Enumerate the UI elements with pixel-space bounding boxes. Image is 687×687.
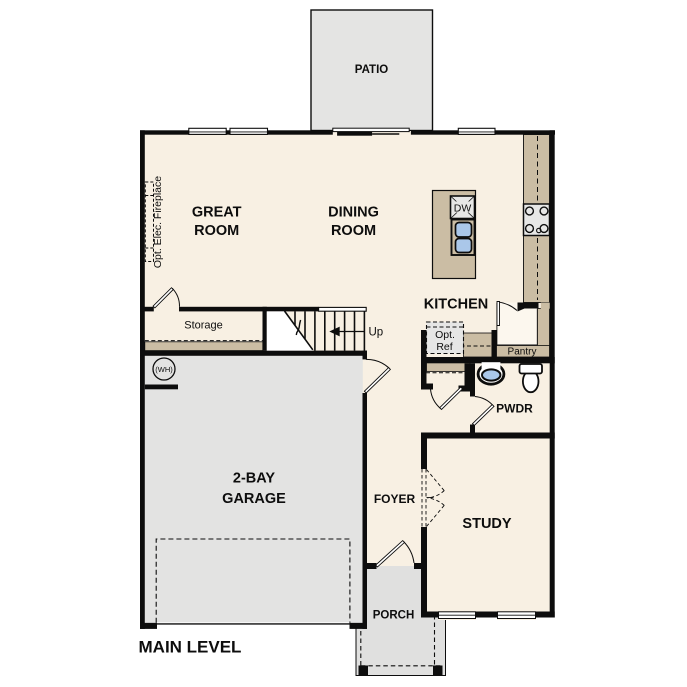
svg-text:ROOM: ROOM <box>331 223 376 239</box>
svg-text:PWDR: PWDR <box>496 402 533 416</box>
svg-text:MAIN LEVEL: MAIN LEVEL <box>139 638 242 657</box>
svg-text:KITCHEN: KITCHEN <box>424 297 488 313</box>
svg-text:PATIO: PATIO <box>355 64 388 76</box>
svg-text:2-BAY: 2-BAY <box>233 471 276 487</box>
svg-text:DW: DW <box>454 203 472 215</box>
svg-text:GREAT: GREAT <box>192 205 242 221</box>
svg-text:Up: Up <box>369 327 384 339</box>
svg-text:FOYER: FOYER <box>374 492 416 506</box>
svg-text:Opt.: Opt. <box>435 329 455 341</box>
svg-text:PORCH: PORCH <box>373 610 415 622</box>
svg-text:GARAGE: GARAGE <box>222 491 286 507</box>
svg-text:Ref: Ref <box>436 341 452 353</box>
svg-text:(WH): (WH) <box>155 365 173 374</box>
svg-text:Pantry: Pantry <box>508 347 537 358</box>
svg-text:DINING: DINING <box>328 205 379 221</box>
svg-text:STUDY: STUDY <box>462 516 511 532</box>
svg-text:Opt. Elec. Fireplace: Opt. Elec. Fireplace <box>152 176 164 268</box>
svg-text:Storage: Storage <box>184 320 223 332</box>
svg-text:ROOM: ROOM <box>194 223 239 239</box>
